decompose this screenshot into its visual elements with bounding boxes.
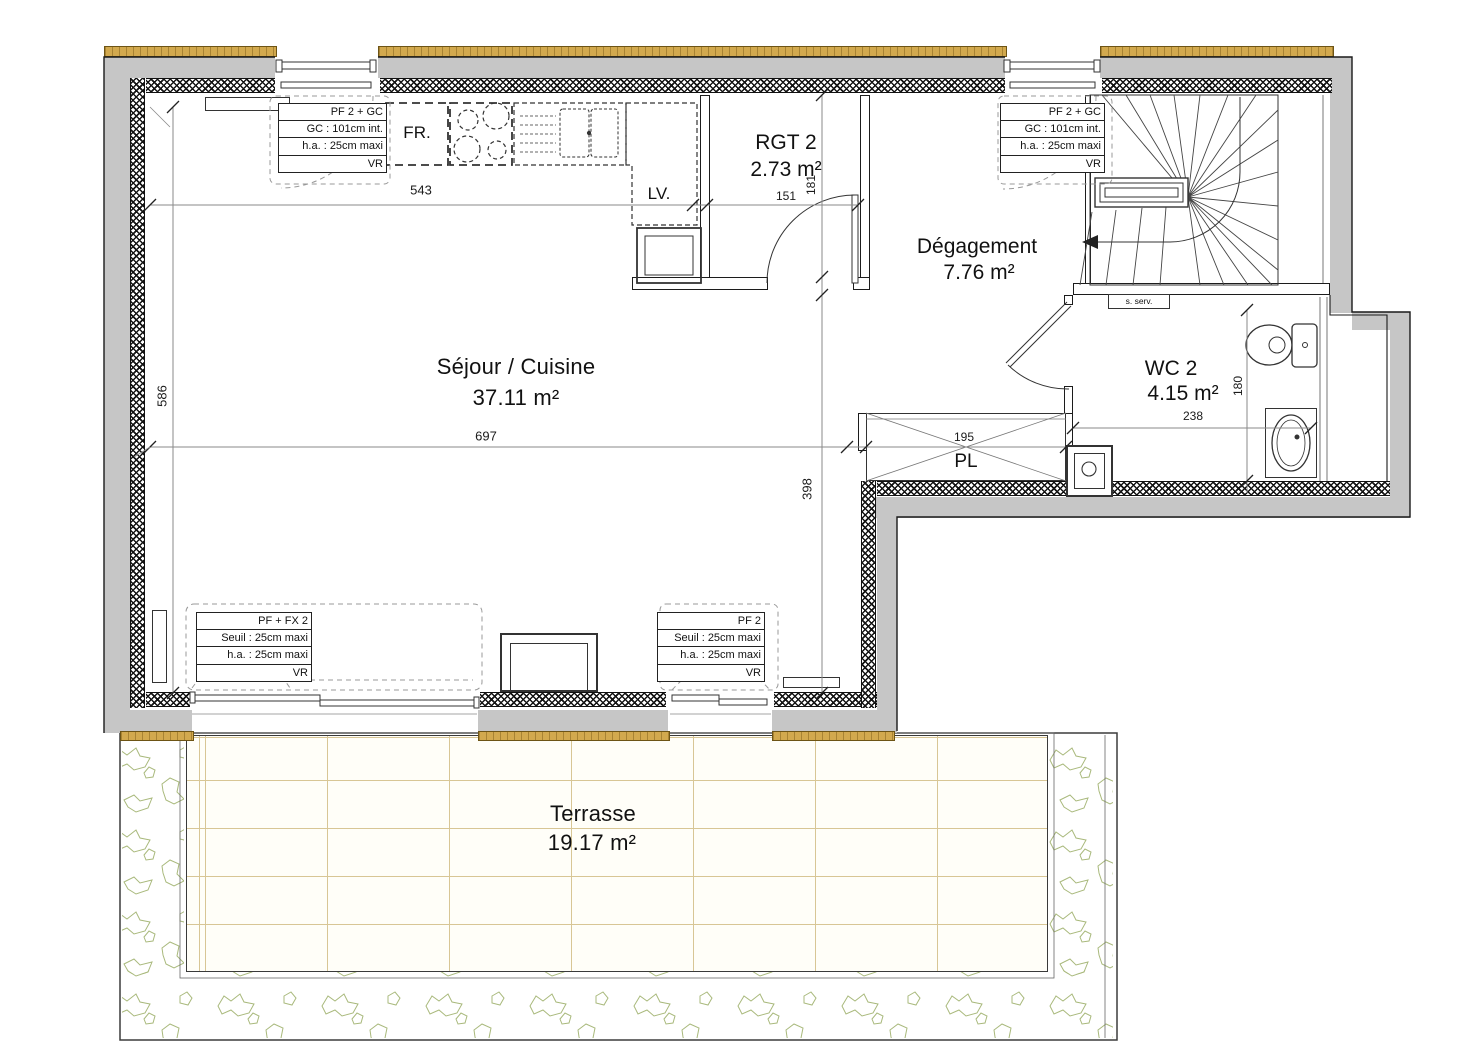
room-label-wc: WC 2 [1145, 357, 1198, 381]
dim-181: 181 [804, 175, 818, 195]
kitchen-cabinet-inner [645, 236, 693, 275]
window-annotation-top-right: PF 2 + GC GC : 101cm int. h.a. : 25cm ma… [1000, 103, 1105, 173]
sink-faucet [587, 131, 590, 134]
dim-151: 151 [776, 189, 796, 203]
dim-543: 543 [410, 183, 432, 198]
door-leaf-wc [1006, 302, 1071, 367]
annotation-row: h.a. : 25cm maxi [658, 646, 764, 663]
annotation-row: PF 2 + GC [1001, 104, 1104, 120]
annotation-row: PF 2 [658, 613, 764, 629]
doors [767, 195, 1071, 389]
window-annotation-bottom-left: PF + FX 2 Seuil : 25cm maxi h.a. : 25cm … [196, 612, 312, 682]
door-swing-rgt [767, 195, 855, 283]
wc-fixtures [1246, 324, 1317, 471]
room-area-wc: 4.15 m² [1147, 382, 1218, 406]
dim-398: 398 [800, 478, 815, 500]
annotation-row: PF 2 + GC [279, 104, 386, 120]
room-area-sejour: 37.11 m² [473, 385, 560, 411]
toilet-button [1303, 343, 1308, 348]
washbasin-faucet [1295, 435, 1299, 439]
room-label-degagement: Dégagement [917, 235, 1037, 259]
window-annotation-top-left: PF 2 + GC GC : 101cm int. h.a. : 25cm ma… [278, 103, 387, 173]
stair-walk-line [1094, 97, 1240, 242]
room-label-rgt: RGT 2 [755, 131, 816, 155]
window-annotation-bottom-mid: PF 2 Seuil : 25cm maxi h.a. : 25cm maxi … [657, 612, 765, 682]
annotation-row: VR [1001, 155, 1104, 172]
annotation-row: Seuil : 25cm maxi [658, 629, 764, 646]
staircase [1080, 95, 1278, 285]
annotation-row: GC : 101cm int. [279, 120, 386, 137]
annotation-row: h.a. : 25cm maxi [1001, 137, 1104, 154]
service-hatch-label: s. serv. [1108, 294, 1170, 309]
dishwasher-label: LV. [648, 184, 671, 204]
toilet-drain [1269, 337, 1285, 353]
room-area-terrasse: 19.17 m² [548, 830, 636, 856]
closet-label: PL [954, 451, 977, 473]
fridge-label: FR. [403, 123, 430, 143]
sink-basin-1 [560, 109, 589, 157]
dim-697: 697 [475, 429, 497, 444]
shaft-duct-circle [1082, 462, 1096, 476]
annotation-row: VR [197, 664, 311, 681]
door-swing-wc [1008, 365, 1069, 389]
dim-238: 238 [1183, 409, 1203, 423]
annotation-row: VR [279, 155, 386, 172]
room-area-degagement: 7.76 m² [943, 261, 1014, 285]
floor-plan: Séjour / Cuisine 37.11 m² RGT 2 2.73 m² … [0, 0, 1463, 1060]
cooktop-burners [454, 103, 509, 162]
room-label-terrasse: Terrasse [550, 801, 636, 827]
annotation-row: Seuil : 25cm maxi [197, 629, 311, 646]
dim-180: 180 [1231, 376, 1245, 396]
washbasin-bowl-inner [1277, 420, 1305, 466]
annotation-row: h.a. : 25cm maxi [279, 137, 386, 154]
dim-195: 195 [954, 430, 974, 444]
counter-return [626, 103, 697, 225]
dim-586: 586 [155, 385, 170, 407]
annotation-row: PF + FX 2 [197, 613, 311, 629]
annotation-row: VR [658, 664, 764, 681]
annotation-row: h.a. : 25cm maxi [197, 646, 311, 663]
cooktop [450, 103, 512, 165]
sink-basin-2 [591, 109, 618, 157]
room-label-sejour: Séjour / Cuisine [437, 354, 596, 380]
plan-linework [0, 0, 1463, 1060]
annotation-row: GC : 101cm int. [1001, 120, 1104, 137]
sink-drainboard [520, 116, 556, 152]
